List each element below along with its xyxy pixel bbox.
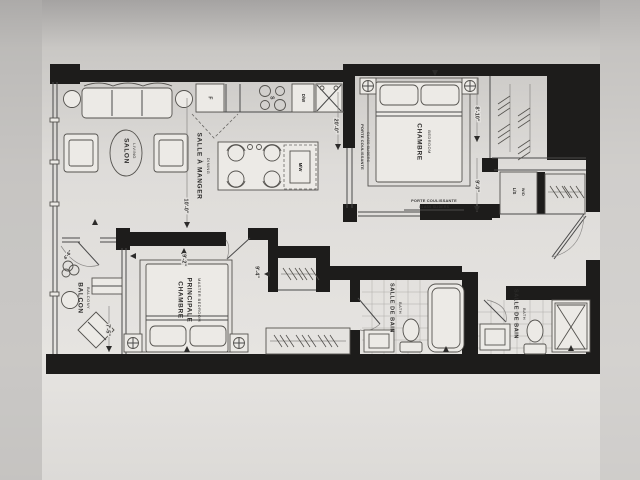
dining-chair bbox=[263, 171, 281, 187]
side-table-left bbox=[64, 91, 81, 108]
photo-right-edge bbox=[600, 0, 640, 480]
room-label-bath-main: SALLE DE BAIN bbox=[389, 283, 395, 333]
room-label-master-1: CHAMBRE bbox=[176, 281, 183, 318]
slider-side-label-1: PORTE COULISSANTE bbox=[360, 124, 365, 170]
room-label-bath-second: SALLE DE BAIN bbox=[513, 289, 519, 339]
room-label-balcon: BALCON bbox=[76, 282, 83, 313]
vanity-sink bbox=[480, 324, 510, 350]
dining-chair bbox=[227, 145, 245, 161]
slider-bottom-label-2: GLASS SLIDERS bbox=[419, 205, 450, 209]
lamp-icon bbox=[128, 338, 139, 349]
bathtub bbox=[428, 284, 464, 352]
dishwasher-label: D/W bbox=[301, 94, 306, 102]
vanity-sink bbox=[364, 330, 394, 352]
room-sublabel-bedroom: BEDROOM bbox=[427, 130, 432, 153]
photo-left-edge bbox=[0, 0, 42, 480]
room-sublabel-living: LIVING bbox=[132, 143, 137, 159]
slider-side-label-2: GLASS SLIDERS bbox=[366, 132, 370, 163]
pillow bbox=[380, 85, 418, 105]
room-sublabel-master: MASTER BEDROOM bbox=[197, 278, 202, 322]
shower bbox=[552, 300, 590, 352]
lamp-icon bbox=[465, 81, 476, 92]
stove-label: S bbox=[269, 96, 275, 100]
side-table-right bbox=[176, 91, 193, 108]
room-label-dining-fr: SALLE À MANGER bbox=[195, 133, 204, 200]
laundry-label-wd: W/D bbox=[521, 188, 526, 196]
fridge-label: F bbox=[207, 96, 213, 99]
floor-plan-svg: SALON LIVING F S D/W bbox=[0, 0, 640, 480]
room-sublabel-balcony: BALCONY bbox=[86, 287, 91, 309]
room-label-master-2: PRINCIPALE bbox=[185, 278, 192, 323]
room-sublabel-bath-second: BATH bbox=[522, 308, 527, 320]
dining-chair bbox=[263, 145, 281, 161]
dining-chair bbox=[227, 171, 245, 187]
room-sublabel-bath-main: BATH bbox=[398, 302, 403, 314]
floor-plan-photo: SALON LIVING F S D/W bbox=[0, 0, 640, 480]
balcony-chair bbox=[62, 292, 79, 309]
pillow bbox=[150, 326, 186, 346]
dim-foyer: 9'-4" bbox=[254, 266, 260, 278]
microwave-label: M/W bbox=[298, 163, 303, 172]
dim-living-width: 10'-0" bbox=[183, 199, 189, 214]
room-sublabel-dining: DINING bbox=[206, 158, 211, 174]
pillow bbox=[421, 85, 459, 105]
dim-master-width: 9'-2" bbox=[181, 254, 187, 266]
pillow bbox=[190, 326, 226, 346]
dim-balcony-depth: 7'-5" bbox=[105, 324, 111, 336]
lamp-icon bbox=[363, 81, 374, 92]
bedroom: CHAMBRE BEDROOM bbox=[360, 70, 478, 186]
dim-bedroom-width: 8'-10" bbox=[474, 107, 480, 122]
lamp-icon bbox=[234, 338, 245, 349]
dim-bedroom-depth: 9'-0" bbox=[474, 180, 480, 192]
slider-bottom-label-1: PORTE COULISSANTE bbox=[411, 198, 457, 203]
laundry-label-ls: L/S bbox=[512, 188, 517, 195]
room-label-salon: SALON bbox=[122, 138, 129, 164]
room-label-chambre: CHAMBRE bbox=[415, 123, 422, 160]
dim-kitchen-run: 20'-0" bbox=[333, 119, 339, 134]
sofa bbox=[82, 88, 172, 118]
